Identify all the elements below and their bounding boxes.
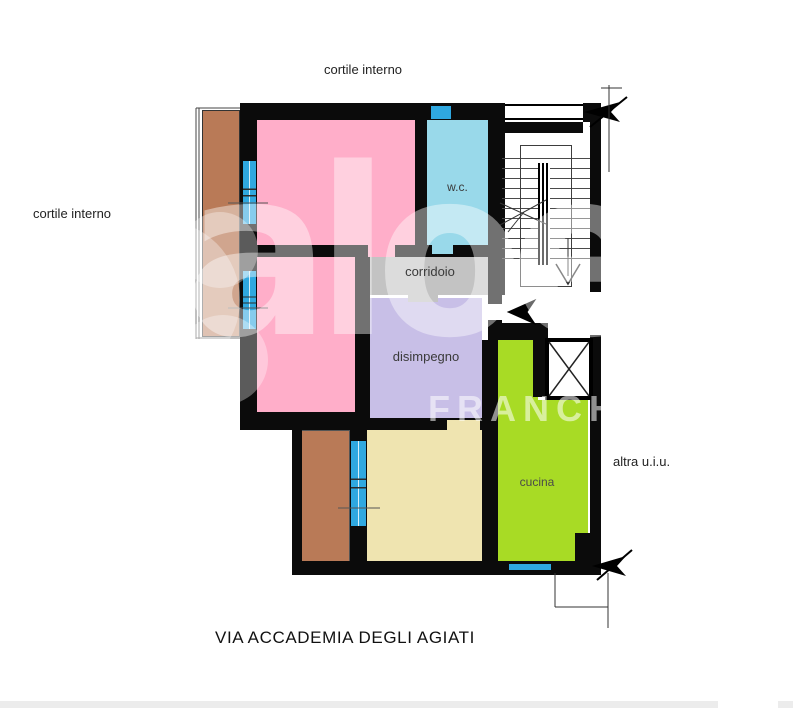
window xyxy=(350,440,367,527)
label-cortile-interno-left: cortile interno xyxy=(33,206,111,221)
wall xyxy=(415,120,427,247)
floor-plan: aloe FRANCH cortile interno cortile inte… xyxy=(0,0,793,720)
door-gap xyxy=(408,293,438,302)
wall xyxy=(350,527,367,561)
bottom-edge-strip xyxy=(778,701,793,708)
stairs-handrail xyxy=(538,163,550,265)
wall xyxy=(355,252,370,420)
label-altra-uiu: altra u.i.u. xyxy=(613,454,670,469)
label-street-name: VIA ACCADEMIA DEGLI AGIATI xyxy=(215,628,475,648)
wall xyxy=(240,103,505,120)
label-corridoio: corridoio xyxy=(370,264,490,279)
wall xyxy=(488,295,502,304)
bedroom-1-room xyxy=(257,120,415,247)
elevator-shaft xyxy=(545,338,593,400)
label-wc: w.c. xyxy=(427,180,488,194)
window xyxy=(430,105,452,120)
wall xyxy=(292,420,302,575)
bedroom-2-room xyxy=(257,257,358,418)
stairwell-top-opening xyxy=(505,104,583,120)
door-gap xyxy=(368,244,395,257)
wall-end-cap xyxy=(592,292,599,301)
entrance-arrow-icon xyxy=(508,300,535,324)
bottom-edge-strip xyxy=(0,701,718,708)
label-disimpegno: disimpegno xyxy=(370,349,482,364)
wall xyxy=(240,103,257,430)
label-cortile-interno-top: cortile interno xyxy=(324,62,402,77)
cucina-room-left xyxy=(498,340,538,561)
door-gap xyxy=(432,242,453,254)
door-gap xyxy=(447,420,480,431)
wall xyxy=(292,561,601,575)
balcony-bottom xyxy=(300,430,350,568)
balcony-left xyxy=(202,110,240,337)
wall xyxy=(482,340,498,561)
wall xyxy=(488,323,548,340)
beige-room xyxy=(367,427,482,563)
wall xyxy=(350,420,367,440)
window xyxy=(508,563,552,571)
label-cucina: cucina xyxy=(498,475,576,489)
window xyxy=(242,270,257,330)
window xyxy=(242,160,257,225)
wall xyxy=(590,110,601,292)
